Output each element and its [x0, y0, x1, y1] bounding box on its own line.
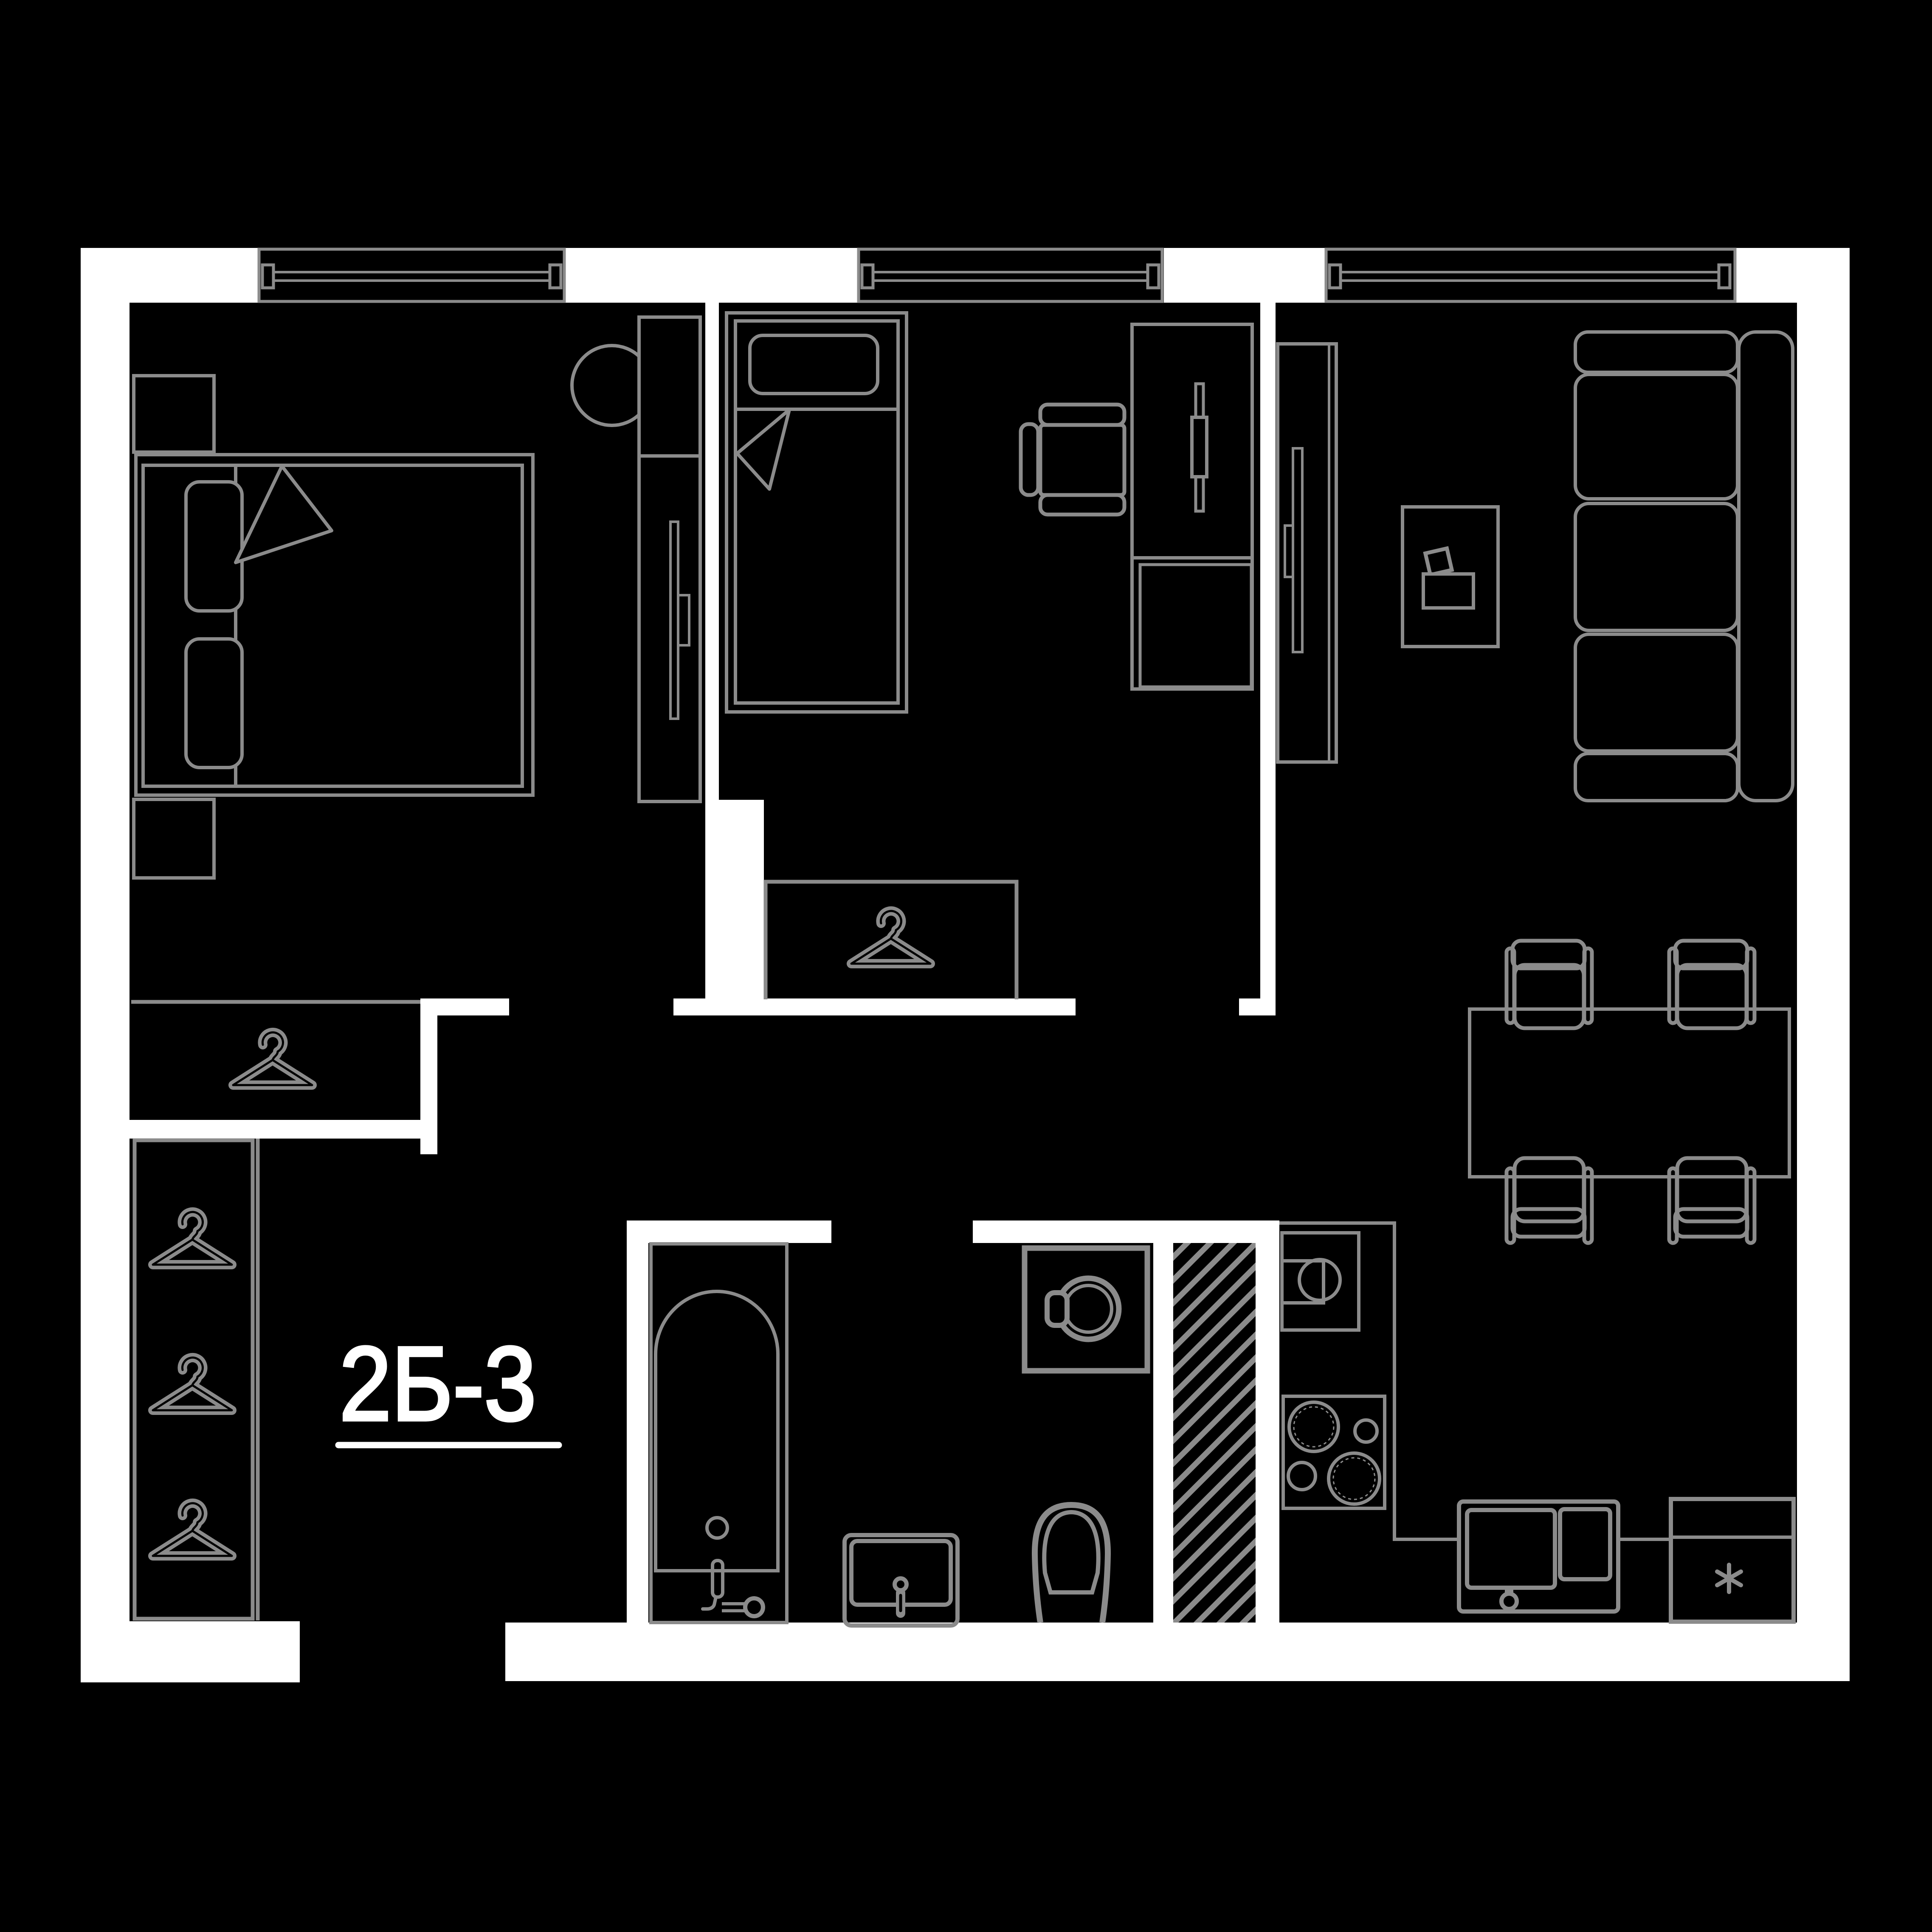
svg-text:2Б-3: 2Б-3: [339, 1325, 536, 1443]
